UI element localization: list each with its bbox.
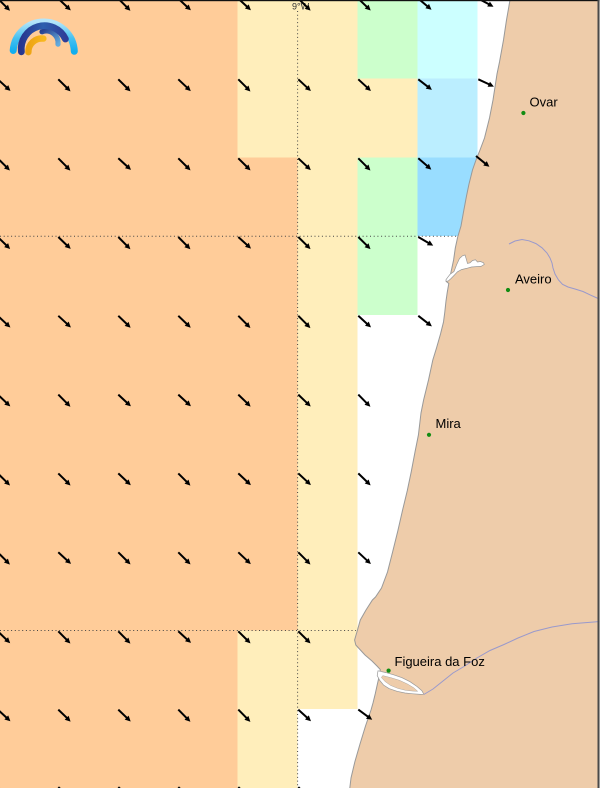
svg-text:Mira: Mira xyxy=(436,416,462,431)
svg-text:Figueira da Foz: Figueira da Foz xyxy=(395,654,485,669)
svg-text:Aveiro: Aveiro xyxy=(515,272,552,287)
svg-text:Ovar: Ovar xyxy=(530,95,559,110)
